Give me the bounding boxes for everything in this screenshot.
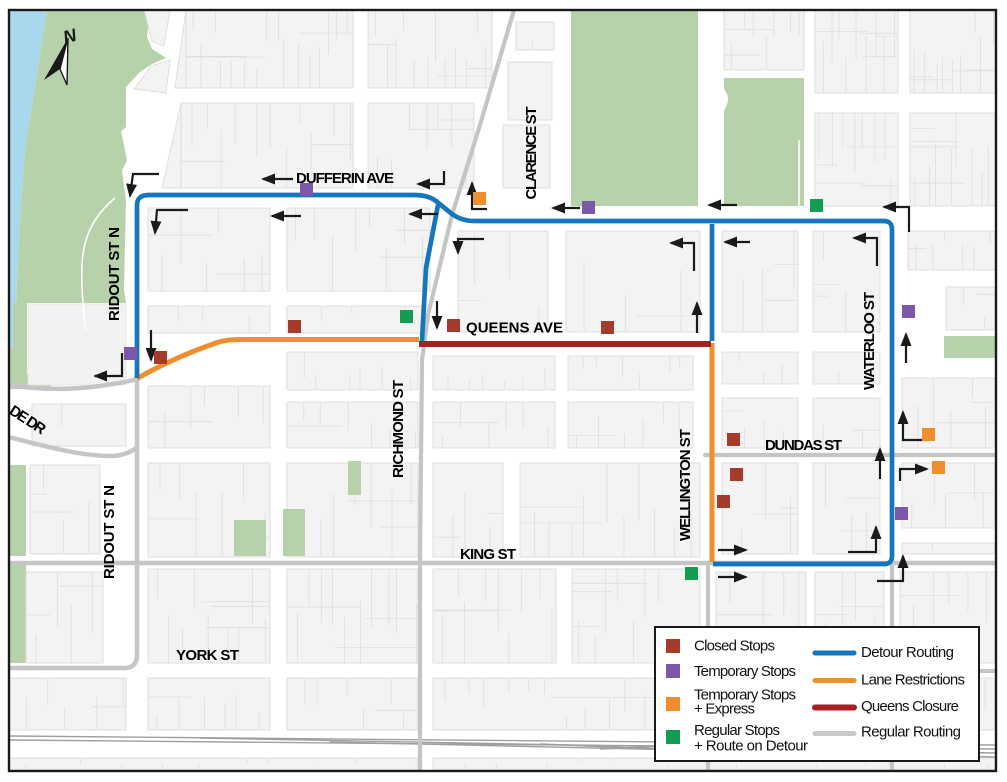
- svg-text:RIDOUT ST N: RIDOUT ST N: [106, 227, 123, 321]
- svg-text:Closed Stops: Closed Stops: [694, 638, 775, 655]
- svg-text:DUNDAS ST: DUNDAS ST: [765, 437, 842, 454]
- svg-text:Temporary Stops: Temporary Stops: [694, 663, 796, 680]
- svg-text:YORK ST: YORK ST: [176, 647, 239, 664]
- svg-text:Regular Stops: Regular Stops: [694, 722, 780, 739]
- svg-text:Detour Routing: Detour Routing: [861, 644, 954, 661]
- svg-text:RICHMOND ST: RICHMOND ST: [390, 380, 407, 478]
- svg-text:CLARENCE ST: CLARENCE ST: [523, 107, 540, 200]
- svg-text:Queens Closure: Queens Closure: [861, 698, 959, 715]
- svg-text:Lane Restrictions: Lane Restrictions: [861, 672, 965, 689]
- svg-text:QUEENS AVE: QUEENS AVE: [466, 320, 563, 337]
- svg-text:+ Express: + Express: [694, 701, 755, 718]
- svg-text:DUFFERIN AVE: DUFFERIN AVE: [296, 170, 394, 187]
- svg-text:WELLINGTON ST: WELLINGTON ST: [677, 429, 694, 541]
- svg-text:+ Route on Detour: + Route on Detour: [694, 738, 808, 755]
- svg-text:RIDOUT ST N: RIDOUT ST N: [101, 485, 118, 579]
- svg-text:WATERLOO ST: WATERLOO ST: [861, 292, 878, 390]
- svg-text:KING ST: KING ST: [460, 546, 516, 563]
- svg-text:Regular Routing: Regular Routing: [861, 724, 961, 741]
